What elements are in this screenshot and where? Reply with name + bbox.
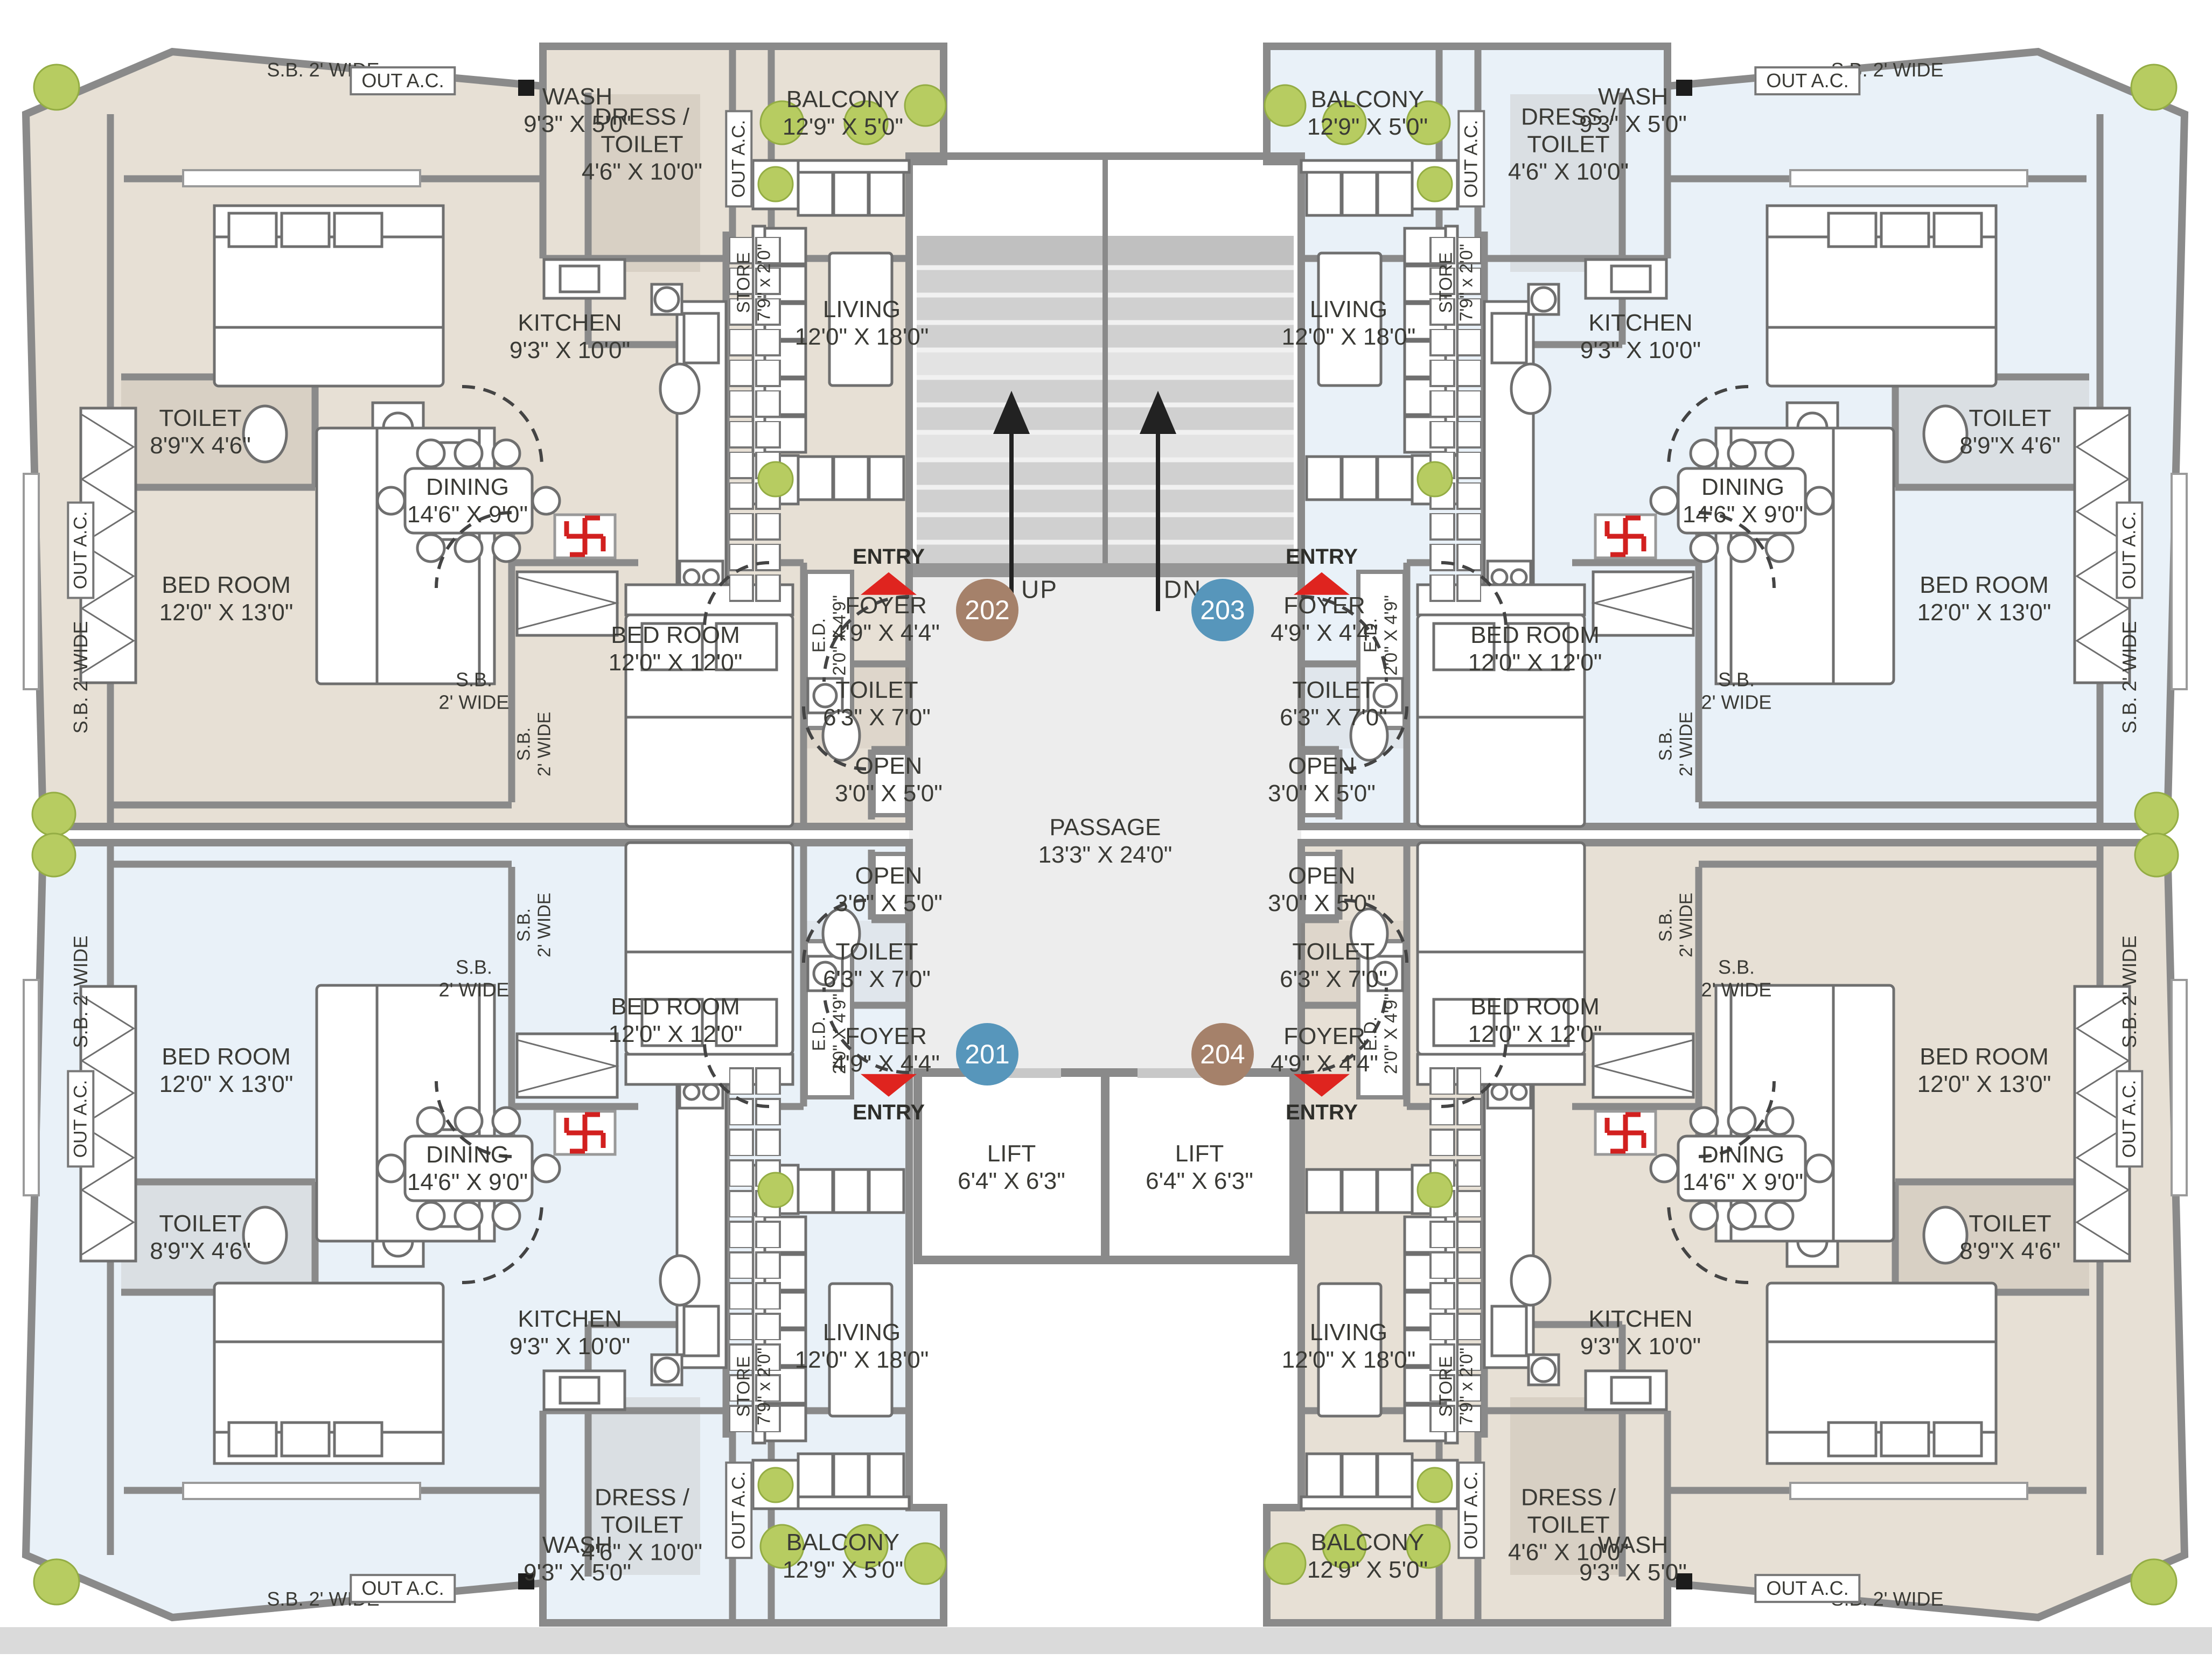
dining-201-line-1: 14'6" X 9'0" (407, 1168, 528, 1196)
living-204-line-0: LIVING (1282, 1319, 1416, 1346)
living-202: LIVING12'0" X 18'0" (795, 296, 929, 351)
toilet-8x4-204: TOILET8'9"X 4'6" (1959, 1210, 2061, 1265)
wash-203-line-1: 9'3" X 5'0" (1579, 110, 1687, 138)
toilet-8x4-203-line-0: TOILET (1959, 404, 2061, 432)
out-ac-right-204-line-0: OUT A.C. (2119, 1080, 2140, 1158)
store-202: STORE7'9" x 2'0" (734, 244, 775, 321)
sb-left-202-line-0: S.B. 2' WIDE (69, 621, 92, 734)
lift-2-label-line-0: LIFT (1146, 1140, 1253, 1167)
out-ac-shaft-204: OUT A.C. (1457, 1462, 1485, 1559)
out-ac-top-202: OUT A.C. (350, 66, 456, 95)
bedroom-12x13-201-line-0: BED ROOM (159, 1043, 294, 1070)
foyer-204-line-0: FOYER (1271, 1022, 1378, 1050)
entry-arrow-icon (861, 1074, 917, 1097)
lift-1-label: LIFT6'4" X 6'3" (958, 1140, 1065, 1195)
sb-col-201-line-0: S.B. (514, 893, 534, 957)
wash-201-line-0: WASH (524, 1531, 631, 1559)
dining-201: DINING14'6" X 9'0" (407, 1141, 528, 1196)
wash-202-line-0: WASH (524, 83, 631, 110)
bedroom-12x12-203: BED ROOM12'0" X 12'0" (1468, 621, 1602, 676)
unit-badge-204: 204 (1191, 1023, 1254, 1085)
out-ac-left-202-line-0: OUT A.C. (70, 512, 91, 590)
store-204: STORE7'9" x 2'0" (1436, 1348, 1477, 1425)
lift-2-label: LIFT6'4" X 6'3" (1146, 1140, 1253, 1195)
foyer-202: FOYER4'9" X 4'4" (832, 592, 940, 647)
wash-201-line-1: 9'3" X 5'0" (524, 1559, 631, 1586)
toilet-8x4-203-line-1: 8'9"X 4'6" (1959, 432, 2061, 459)
toilet-6x7-203-line-1: 6'3" X 7'0" (1280, 704, 1387, 731)
sb-col-204-line-0: S.B. (1656, 893, 1676, 957)
toilet-8x4-204-line-0: TOILET (1959, 1210, 2061, 1237)
toilet-6x7-203: TOILET6'3" X 7'0" (1280, 676, 1387, 731)
bedroom-12x12-201-line-0: BED ROOM (609, 993, 743, 1020)
labels-layer: S.B. 2' WIDEOUT A.C.DRESS /TOILET4'6" X … (0, 0, 2212, 1667)
foyer-203-line-1: 4'9" X 4'4" (1271, 619, 1378, 647)
open-201-line-0: OPEN (835, 862, 943, 889)
sb-mid-201-line-1: 2' WIDE (439, 978, 510, 1001)
out-ac-shaft-203-line-0: OUT A.C. (1461, 120, 1482, 198)
store-203-line-1: 7'9" x 2'0" (1456, 244, 1477, 321)
toilet-6x7-201: TOILET6'3" X 7'0" (823, 938, 931, 993)
dining-202-line-1: 14'6" X 9'0" (407, 501, 528, 528)
living-203: LIVING12'0" X 18'0" (1282, 296, 1416, 351)
balcony-204-line-1: 12'9" X 5'0" (1307, 1556, 1428, 1584)
kitchen-203-line-0: KITCHEN (1580, 309, 1701, 337)
foyer-202-line-0: FOYER (832, 592, 940, 619)
dining-204-line-1: 14'6" X 9'0" (1683, 1168, 1803, 1196)
out-ac-top-203-line-0: OUT A.C. (1766, 69, 1848, 92)
kitchen-203: KITCHEN9'3" X 10'0" (1580, 309, 1701, 364)
entry-204-text: ENTRY (1286, 1100, 1358, 1125)
bedroom-12x12-201: BED ROOM12'0" X 12'0" (609, 993, 743, 1048)
foyer-201: FOYER4'9" X 4'4" (832, 1022, 940, 1077)
unit-badge-201-number: 201 (965, 1039, 1009, 1070)
passage-label-line-1: 13'3" X 24'0" (1038, 841, 1173, 868)
sb-left-201-line-0: S.B. 2' WIDE (69, 936, 92, 1048)
wash-201: WASH9'3" X 5'0" (524, 1531, 631, 1586)
toilet-8x4-202-line-0: TOILET (150, 404, 251, 432)
entry-201-text: ENTRY (853, 1100, 925, 1125)
sb-col-203-line-0: S.B. (1656, 712, 1676, 776)
living-204: LIVING12'0" X 18'0" (1282, 1319, 1416, 1374)
kitchen-201-line-1: 9'3" X 10'0" (510, 1333, 630, 1360)
toilet-6x7-204-line-1: 6'3" X 7'0" (1280, 965, 1387, 993)
toilet-6x7-203-line-0: TOILET (1280, 676, 1387, 704)
passage-label: PASSAGE13'3" X 24'0" (1038, 814, 1173, 868)
entry-202: ENTRY (853, 544, 925, 595)
toilet-6x7-201-line-1: 6'3" X 7'0" (823, 965, 931, 993)
living-202-line-1: 12'0" X 18'0" (795, 323, 929, 351)
sb-mid-201-line-0: S.B. (439, 956, 510, 978)
out-ac-right-204: OUT A.C. (2116, 1070, 2143, 1168)
living-201-line-1: 12'0" X 18'0" (795, 1346, 929, 1374)
wash-204: WASH9'3" X 5'0" (1579, 1531, 1687, 1586)
toilet-8x4-201: TOILET8'9"X 4'6" (150, 1210, 251, 1265)
living-203-line-0: LIVING (1282, 296, 1416, 323)
foyer-201-line-1: 4'9" X 4'4" (832, 1050, 940, 1077)
kitchen-201: KITCHEN9'3" X 10'0" (510, 1305, 630, 1360)
toilet-6x7-202-line-0: TOILET (823, 676, 931, 704)
bedroom-12x12-202: BED ROOM12'0" X 12'0" (609, 621, 743, 676)
open-201-line-1: 3'0" X 5'0" (835, 889, 943, 917)
sb-mid-203-line-1: 2' WIDE (1701, 691, 1772, 713)
store-202-line-1: 7'9" x 2'0" (754, 244, 774, 321)
sb-col-202-line-0: S.B. (514, 712, 534, 776)
toilet-6x7-201-line-0: TOILET (823, 938, 931, 965)
toilet-6x7-202: TOILET6'3" X 7'0" (823, 676, 931, 731)
bedroom-12x12-201-line-1: 12'0" X 12'0" (609, 1020, 743, 1048)
kitchen-204-line-1: 9'3" X 10'0" (1580, 1333, 1701, 1360)
sb-col-203: S.B.2' WIDE (1656, 712, 1697, 776)
out-ac-top-203: OUT A.C. (1754, 66, 1860, 95)
ed-204-line-1: 2'0" X 4'9" (1381, 993, 1401, 1074)
bedroom-12x12-202-line-1: 12'0" X 12'0" (609, 649, 743, 676)
balcony-201: BALCONY12'9" X 5'0" (783, 1529, 903, 1584)
balcony-202-line-1: 12'9" X 5'0" (783, 113, 903, 141)
open-202: OPEN3'0" X 5'0" (835, 752, 943, 807)
balcony-203-line-1: 12'9" X 5'0" (1307, 113, 1428, 141)
dress-toilet-201-line-0: DRESS / (582, 1483, 702, 1511)
bedroom-12x13-204-line-0: BED ROOM (1917, 1043, 2051, 1070)
sb-mid-204-line-0: S.B. (1701, 956, 1772, 978)
living-203-line-1: 12'0" X 18'0" (1282, 323, 1416, 351)
unit-badge-202-number: 202 (965, 594, 1009, 626)
dress-toilet-202-line-2: 4'6" X 10'0" (582, 158, 702, 186)
sb-right-203-line-0: S.B. 2' WIDE (2118, 621, 2141, 734)
floor-plan-stage: S.B. 2' WIDEOUT A.C.DRESS /TOILET4'6" X … (0, 0, 2212, 1667)
living-201: LIVING12'0" X 18'0" (795, 1319, 929, 1374)
store-204-line-0: STORE (1436, 1348, 1456, 1425)
open-201: OPEN3'0" X 5'0" (835, 862, 943, 917)
dining-203-line-1: 14'6" X 9'0" (1683, 501, 1803, 528)
dining-202-line-0: DINING (407, 473, 528, 501)
bedroom-12x13-201-line-1: 12'0" X 13'0" (159, 1070, 294, 1098)
out-ac-shaft-203: OUT A.C. (1457, 110, 1485, 208)
out-ac-shaft-202-line-0: OUT A.C. (728, 120, 749, 198)
entry-202-text: ENTRY (853, 544, 925, 569)
open-203-line-1: 3'0" X 5'0" (1268, 780, 1376, 807)
out-ac-left-201: OUT A.C. (67, 1070, 94, 1168)
entry-203: ENTRY (1286, 544, 1358, 595)
entry-203-text: ENTRY (1286, 544, 1358, 569)
bedroom-12x13-204-line-1: 12'0" X 13'0" (1917, 1070, 2051, 1098)
kitchen-202: KITCHEN9'3" X 10'0" (510, 309, 630, 364)
sb-mid-204: S.B.2' WIDE (1701, 956, 1772, 1001)
dining-203-line-0: DINING (1683, 473, 1803, 501)
bedroom-12x13-203: BED ROOM12'0" X 13'0" (1917, 571, 2051, 626)
wash-204-line-0: WASH (1579, 1531, 1687, 1559)
lift-2-label-line-1: 6'4" X 6'3" (1146, 1167, 1253, 1195)
sb-mid-202-line-0: S.B. (439, 668, 510, 691)
bedroom-12x12-203-line-0: BED ROOM (1468, 621, 1602, 649)
entry-204: ENTRY (1286, 1074, 1358, 1125)
open-204-line-1: 3'0" X 5'0" (1268, 889, 1376, 917)
sb-left-202: S.B. 2' WIDE (69, 621, 92, 734)
sb-mid-201: S.B.2' WIDE (439, 956, 510, 1001)
toilet-8x4-202-line-1: 8'9"X 4'6" (150, 432, 251, 459)
dining-204-line-0: DINING (1683, 1141, 1803, 1168)
toilet-8x4-203: TOILET8'9"X 4'6" (1959, 404, 2061, 459)
bedroom-12x13-201: BED ROOM12'0" X 13'0" (159, 1043, 294, 1098)
dress-toilet-204-line-0: DRESS / (1508, 1483, 1629, 1511)
sb-mid-204-line-1: 2' WIDE (1701, 978, 1772, 1001)
sb-col-202: S.B.2' WIDE (514, 712, 555, 776)
out-ac-shaft-204-line-0: OUT A.C. (1461, 1472, 1482, 1550)
out-ac-top-202-line-0: OUT A.C. (361, 69, 444, 92)
open-204: OPEN3'0" X 5'0" (1268, 862, 1376, 917)
bedroom-12x13-203-line-1: 12'0" X 13'0" (1917, 599, 2051, 626)
foyer-201-line-0: FOYER (832, 1022, 940, 1050)
toilet-8x4-202: TOILET8'9"X 4'6" (150, 404, 251, 459)
out-ac-bottom-201-line-0: OUT A.C. (361, 1577, 444, 1600)
balcony-204: BALCONY12'9" X 5'0" (1307, 1529, 1428, 1584)
out-ac-shaft-201: OUT A.C. (725, 1462, 752, 1559)
wash-202: WASH9'3" X 5'0" (524, 83, 631, 138)
bedroom-12x12-204-line-1: 12'0" X 12'0" (1468, 1020, 1602, 1048)
unit-badge-202: 202 (956, 579, 1018, 641)
open-203-line-0: OPEN (1268, 752, 1376, 780)
balcony-204-line-0: BALCONY (1307, 1529, 1428, 1556)
balcony-202-line-0: BALCONY (783, 86, 903, 113)
toilet-8x4-201-line-1: 8'9"X 4'6" (150, 1237, 251, 1265)
balcony-203-line-0: BALCONY (1307, 86, 1428, 113)
sb-col-204-line-1: 2' WIDE (1676, 893, 1697, 957)
unit-badge-201: 201 (956, 1023, 1018, 1085)
wash-203: WASH9'3" X 5'0" (1579, 83, 1687, 138)
toilet-6x7-204-line-0: TOILET (1280, 938, 1387, 965)
store-204-line-1: 7'9" x 2'0" (1456, 1348, 1477, 1425)
foyer-204-line-1: 4'9" X 4'4" (1271, 1050, 1378, 1077)
bedroom-12x12-202-line-0: BED ROOM (609, 621, 743, 649)
out-ac-shaft-202: OUT A.C. (725, 110, 752, 208)
out-ac-shaft-201-line-0: OUT A.C. (728, 1472, 749, 1550)
bedroom-12x13-204: BED ROOM12'0" X 13'0" (1917, 1043, 2051, 1098)
living-201-line-0: LIVING (795, 1319, 929, 1346)
sb-col-202-line-1: 2' WIDE (534, 712, 555, 776)
entry-arrow-icon (1294, 1074, 1350, 1097)
foyer-204: FOYER4'9" X 4'4" (1271, 1022, 1378, 1077)
sb-col-203-line-1: 2' WIDE (1676, 712, 1697, 776)
dining-202: DINING14'6" X 9'0" (407, 473, 528, 528)
toilet-6x7-202-line-1: 6'3" X 7'0" (823, 704, 931, 731)
toilet-8x4-204-line-1: 8'9"X 4'6" (1959, 1237, 2061, 1265)
store-203-line-0: STORE (1436, 244, 1456, 321)
entry-201: ENTRY (853, 1074, 925, 1125)
bedroom-12x13-202-line-0: BED ROOM (159, 571, 294, 599)
dining-201-line-0: DINING (407, 1141, 528, 1168)
unit-badge-203: 203 (1191, 579, 1254, 641)
toilet-6x7-204: TOILET6'3" X 7'0" (1280, 938, 1387, 993)
sb-mid-203: S.B.2' WIDE (1701, 668, 1772, 713)
up-label-line-0: UP (1021, 575, 1058, 604)
open-203: OPEN3'0" X 5'0" (1268, 752, 1376, 807)
passage-label-line-0: PASSAGE (1038, 814, 1173, 841)
out-ac-left-202: OUT A.C. (67, 502, 94, 599)
living-202-line-0: LIVING (795, 296, 929, 323)
out-ac-right-203-line-0: OUT A.C. (2119, 512, 2140, 590)
wash-203-line-0: WASH (1579, 83, 1687, 110)
dress-toilet-203-line-2: 4'6" X 10'0" (1508, 158, 1629, 186)
kitchen-204-line-0: KITCHEN (1580, 1305, 1701, 1333)
foyer-203: FOYER4'9" X 4'4" (1271, 592, 1378, 647)
unit-badge-203-number: 203 (1200, 594, 1245, 626)
out-ac-bottom-204-line-0: OUT A.C. (1766, 1577, 1848, 1600)
bedroom-12x12-203-line-1: 12'0" X 12'0" (1468, 649, 1602, 676)
wash-202-line-1: 9'3" X 5'0" (524, 110, 631, 138)
bedroom-12x13-203-line-0: BED ROOM (1917, 571, 2051, 599)
unit-badge-204-number: 204 (1200, 1039, 1245, 1070)
out-ac-left-201-line-0: OUT A.C. (70, 1080, 91, 1158)
wash-204-line-1: 9'3" X 5'0" (1579, 1559, 1687, 1586)
bedroom-12x13-202-line-1: 12'0" X 13'0" (159, 599, 294, 626)
store-202-line-0: STORE (734, 244, 754, 321)
sb-mid-203-line-0: S.B. (1701, 668, 1772, 691)
lift-1-label-line-1: 6'4" X 6'3" (958, 1167, 1065, 1195)
foyer-202-line-1: 4'9" X 4'4" (832, 619, 940, 647)
sb-right-203: S.B. 2' WIDE (2118, 621, 2141, 734)
bedroom-12x12-204-line-0: BED ROOM (1468, 993, 1602, 1020)
balcony-201-line-1: 12'9" X 5'0" (783, 1556, 903, 1584)
out-ac-right-203: OUT A.C. (2116, 502, 2143, 599)
bedroom-12x13-202: BED ROOM12'0" X 13'0" (159, 571, 294, 626)
balcony-201-line-0: BALCONY (783, 1529, 903, 1556)
kitchen-202-line-0: KITCHEN (510, 309, 630, 337)
sb-col-201: S.B.2' WIDE (514, 893, 555, 957)
store-201-line-1: 7'9" x 2'0" (754, 1348, 774, 1425)
balcony-202: BALCONY12'9" X 5'0" (783, 86, 903, 141)
kitchen-204: KITCHEN9'3" X 10'0" (1580, 1305, 1701, 1360)
sb-col-201-line-1: 2' WIDE (534, 893, 555, 957)
sb-right-204-line-0: S.B. 2' WIDE (2118, 936, 2141, 1048)
dining-203: DINING14'6" X 9'0" (1683, 473, 1803, 528)
balcony-203: BALCONY12'9" X 5'0" (1307, 86, 1428, 141)
out-ac-bottom-201: OUT A.C. (350, 1574, 456, 1603)
store-203: STORE7'9" x 2'0" (1436, 244, 1477, 321)
open-202-line-0: OPEN (835, 752, 943, 780)
kitchen-202-line-1: 9'3" X 10'0" (510, 337, 630, 364)
open-204-line-0: OPEN (1268, 862, 1376, 889)
kitchen-203-line-1: 9'3" X 10'0" (1580, 337, 1701, 364)
kitchen-201-line-0: KITCHEN (510, 1305, 630, 1333)
store-201: STORE7'9" x 2'0" (734, 1348, 775, 1425)
sb-right-204: S.B. 2' WIDE (2118, 936, 2141, 1048)
out-ac-bottom-204: OUT A.C. (1754, 1574, 1860, 1603)
up-label: UP (1021, 575, 1058, 604)
sb-mid-202-line-1: 2' WIDE (439, 691, 510, 713)
sb-col-204: S.B.2' WIDE (1656, 893, 1697, 957)
living-204-line-1: 12'0" X 18'0" (1282, 1346, 1416, 1374)
store-201-line-0: STORE (734, 1348, 754, 1425)
bedroom-12x12-204: BED ROOM12'0" X 12'0" (1468, 993, 1602, 1048)
open-202-line-1: 3'0" X 5'0" (835, 780, 943, 807)
sb-mid-202: S.B.2' WIDE (439, 668, 510, 713)
toilet-8x4-201-line-0: TOILET (150, 1210, 251, 1237)
lift-1-label-line-0: LIFT (958, 1140, 1065, 1167)
ed-202-line-0: E.D. (809, 595, 829, 676)
ed-203-line-1: 2'0" X 4'9" (1381, 595, 1401, 676)
ed-201-line-0: E.D. (809, 993, 829, 1074)
sb-left-201: S.B. 2' WIDE (69, 936, 92, 1048)
foyer-203-line-0: FOYER (1271, 592, 1378, 619)
dining-204: DINING14'6" X 9'0" (1683, 1141, 1803, 1196)
